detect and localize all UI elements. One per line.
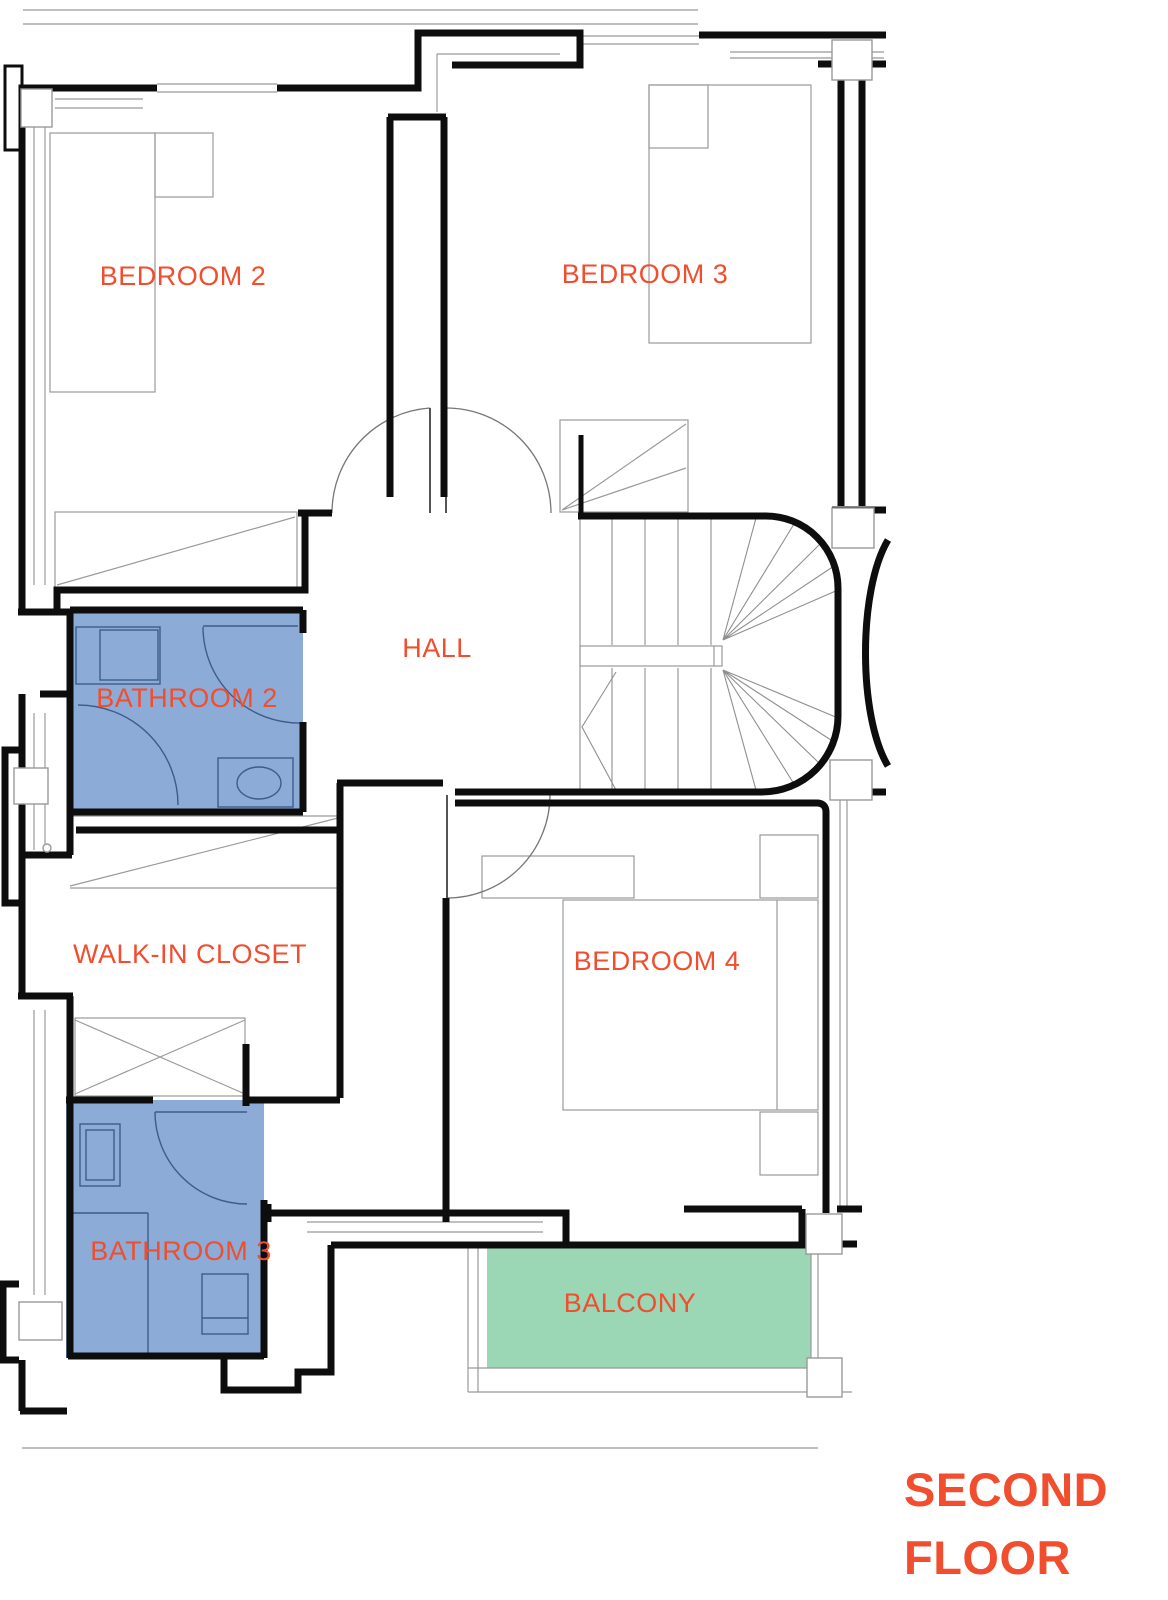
pillow-bedroom3 xyxy=(649,85,708,148)
post-stair-bottom xyxy=(830,760,872,800)
post-stair-top xyxy=(832,508,874,548)
wall-closet-corridor xyxy=(337,783,446,1222)
winder-corner-lines xyxy=(582,672,616,790)
post-top-left xyxy=(21,89,52,127)
label-bathroom-3: BATHROOM 3 xyxy=(90,1236,272,1266)
window-bedroom4-right xyxy=(840,782,847,1206)
wall-divider-bed2-bed3 xyxy=(388,117,446,497)
label-bedroom-4: BEDROOM 4 xyxy=(574,946,741,976)
floor-title-line1: SECOND xyxy=(904,1463,1108,1516)
floor-plan-canvas: BEDROOM 2 BEDROOM 3 HALL BATHROOM 2 WALK… xyxy=(0,0,1168,1600)
post-balcony-bottom xyxy=(807,1358,842,1397)
window-bedroom2-top xyxy=(55,99,143,108)
stair-treads-upper xyxy=(612,518,711,645)
post-bottom-left xyxy=(19,1302,62,1340)
wall-stair-passage-curve xyxy=(866,540,889,766)
window-top-center xyxy=(582,36,699,44)
stair-treads-lower xyxy=(612,668,711,790)
label-balcony: BALCONY xyxy=(564,1288,697,1318)
wall-top-left xyxy=(22,88,157,613)
closet-bedroom2 xyxy=(55,512,297,588)
label-hall: HALL xyxy=(402,633,472,663)
window-left-bedroom2 xyxy=(34,120,45,585)
label-walk-in-closet: WALK-IN CLOSET xyxy=(73,939,307,969)
window-bedroom4-bottom xyxy=(307,1222,543,1232)
floor-title: SECOND FLOOR xyxy=(904,1463,1108,1584)
wall-right-upper xyxy=(832,62,886,510)
floor-title-line2: FLOOR xyxy=(904,1531,1071,1584)
door-arc-bedroom4 xyxy=(447,795,550,898)
floor-plan-page: BEDROOM 2 BEDROOM 3 HALL BATHROOM 2 WALK… xyxy=(0,0,1168,1600)
nightstand-bottom xyxy=(760,1112,818,1175)
window-left-bathroom3 xyxy=(34,1010,45,1295)
desk-bedroom4 xyxy=(482,856,634,898)
nightstand-top xyxy=(760,835,818,898)
bed-bedroom4 xyxy=(563,900,818,1110)
wall-closet-bottom xyxy=(66,1044,340,1106)
wall-top-bay xyxy=(277,33,580,88)
label-bedroom-3: BEDROOM 3 xyxy=(562,259,729,289)
post-top-right xyxy=(832,40,872,80)
winder-fan-lower xyxy=(723,670,838,790)
label-bathroom-2: BATHROOM 2 xyxy=(96,683,278,713)
door-arc-bedroom3 xyxy=(446,408,551,513)
bedroom-3-furniture xyxy=(560,85,811,512)
wall-bedroom4 xyxy=(455,803,826,1213)
post-mid-left xyxy=(14,768,48,804)
bathroom-3-area xyxy=(66,1100,264,1358)
door-arc-bedroom2 xyxy=(332,408,430,513)
label-bedroom-2: BEDROOM 2 xyxy=(100,261,267,291)
stair-landing-rail xyxy=(580,646,722,666)
wall-bedroom2-bottom xyxy=(57,513,332,612)
bedroom-2-furniture xyxy=(50,133,297,588)
post-balcony-top xyxy=(806,1214,842,1254)
bedroom-4-furniture xyxy=(482,835,818,1175)
bed-bedroom3 xyxy=(649,85,811,343)
wall-stair-enclosure xyxy=(455,516,838,792)
window-top-left xyxy=(157,84,277,92)
staircase xyxy=(580,518,838,790)
pillow-bedroom2 xyxy=(155,133,213,197)
